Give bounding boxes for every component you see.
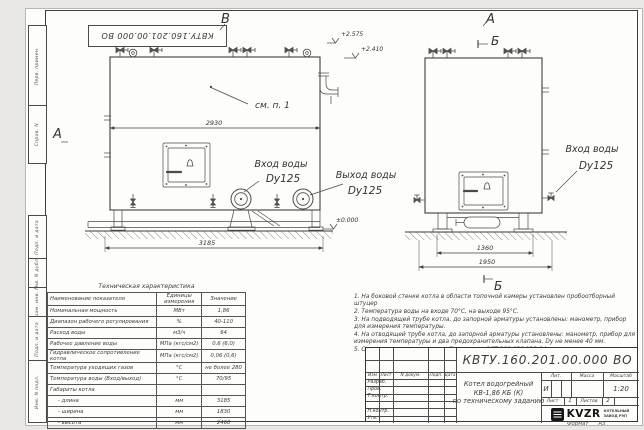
doc-number: КВТУ.160.201.00.000 ВО	[456, 348, 639, 372]
burner-icon	[456, 217, 500, 228]
tb-mass-label: Масса	[571, 372, 603, 380]
spec-row: Гидравлическое сопротивление котлаМПа (к…	[48, 350, 246, 363]
tb-row-tkontr: Т.контр.	[368, 394, 389, 399]
inlet-callout-front: Вход воды Dy125	[244, 159, 308, 192]
tb-col-podp: Подп.	[428, 372, 444, 379]
dim-2930-label: 2930	[206, 119, 223, 127]
dim-1360-label: 1360	[477, 244, 494, 252]
pipe-valve-left	[414, 195, 425, 202]
dim-1950-label: 1950	[479, 258, 496, 266]
elevation-marks: +2.575 +2.410 ±0.000	[323, 31, 383, 229]
furnace-door-front	[163, 143, 210, 187]
spec-row: Температура уходящих газов°Сне более 280	[48, 363, 246, 374]
technical-notes: 1. На боковой стенке котла в области топ…	[354, 294, 639, 354]
tb-lit-value: И	[541, 380, 551, 397]
front-view: 2930 3185 см. п. 1 В А Вход воды Dy125 В…	[52, 12, 397, 252]
outlet-callout-front: Выход воды Dy125	[310, 170, 397, 197]
outlet-title: Выход воды	[336, 170, 397, 181]
tb-row-utv: Утв.	[368, 416, 378, 421]
tb-sheet-value: 1	[564, 397, 576, 405]
see-note-label: см. п. 1	[255, 101, 290, 111]
spec-row: Расход водым3/ч64	[48, 328, 246, 339]
elev-2410-label: +2.410	[361, 46, 383, 53]
section-letter-B: Б	[494, 279, 502, 293]
tb-scale-value: 1:20	[603, 380, 639, 397]
note-line: 2. Температура воды на входе 70°С, на вы…	[354, 309, 639, 316]
tb-row-razrab: Разраб.	[368, 380, 387, 385]
tb-col-ndocum: N докум.	[393, 372, 428, 379]
spec-col-name: Наименование показателя	[48, 293, 157, 306]
drain-valve-icon	[274, 194, 279, 208]
lifting-lug-icon	[129, 49, 137, 57]
outlet-elbow-icon	[318, 73, 338, 104]
tb-col-list: Лист	[379, 372, 393, 379]
inlet-title: Вход воды	[254, 159, 308, 170]
tb-row-nkontr: Н.контр.	[368, 409, 389, 414]
view-arrow-A: А	[485, 12, 495, 27]
dim-3185-label: 3185	[199, 239, 216, 247]
outlet-size: Dy125	[348, 185, 383, 197]
side-flange-ticks	[542, 88, 549, 154]
tb-sheets-value: 2	[602, 397, 614, 405]
spec-col-value: Значение	[202, 293, 246, 306]
ground-hatch	[405, 232, 567, 240]
door-lock-icon	[484, 183, 490, 189]
section-mark-B-bottom: Б	[484, 275, 502, 293]
tb-sheet-label: Лист	[541, 397, 564, 405]
product-name: Котел водогрейный КВ-1,86 КБ (К) по техн…	[456, 372, 541, 414]
ground-hatch	[85, 231, 333, 239]
title-block: Изм Лист N докум. Подп. Дата Разраб. Про…	[365, 347, 638, 422]
valve-icon	[285, 47, 297, 57]
spec-row: Температура воды (Вход/выход)°С70/95	[48, 374, 246, 385]
note-line: 1. На боковой стенке котла в области топ…	[354, 294, 639, 308]
water-inlet-flange-icon	[231, 189, 251, 209]
inlet-title: Вход воды	[565, 144, 619, 155]
door-lock-icon	[187, 160, 193, 166]
tb-sheets-label: Листов	[576, 397, 602, 405]
furnace-door-side	[459, 172, 508, 210]
drain-valve-icon	[130, 194, 135, 208]
spec-row: Диапазон рабочего регулирования%40-110	[48, 317, 246, 328]
valve-icon	[116, 47, 128, 57]
valve-icon	[443, 48, 455, 58]
tb-col-izm: Изм	[366, 372, 379, 379]
inlet-size: Dy125	[579, 160, 614, 172]
elev-2575-label: +2.575	[341, 31, 363, 38]
section-letter-A-left: А	[52, 127, 62, 142]
section-letter-B: Б	[491, 34, 499, 48]
inlet-size: Dy125	[266, 173, 301, 185]
spec-row: Габариты котла	[48, 385, 246, 396]
valve-icon	[229, 47, 241, 57]
kvzr-logo-icon	[551, 408, 564, 421]
side-view: А Б	[405, 12, 619, 293]
spec-row: Номинальная мощностьМВт1,86	[48, 306, 246, 317]
tb-scale-label: Масштаб	[603, 372, 639, 380]
spec-header-row: Наименование показателя Единицы измерени…	[48, 293, 246, 306]
pipe-valve-right	[542, 193, 554, 200]
note-line: 3. На подводящей трубе котла, до запорно…	[354, 317, 639, 331]
valve-icon	[243, 47, 255, 57]
tb-col-data: Дата	[444, 372, 456, 379]
format-note: ФорматА3	[567, 421, 606, 427]
see-note-callout: см. п. 1	[210, 86, 290, 111]
tb-lit-label: Лит.	[541, 372, 571, 380]
spec-table: Техническая характеристика Наименование …	[47, 283, 246, 429]
water-outlet-flange-icon	[293, 189, 313, 209]
dimension-2930: 2930	[110, 119, 320, 128]
section-mark-B-top: Б	[478, 34, 499, 48]
drain-valve-icon	[210, 194, 215, 208]
spec-row: - ширинамм1830	[48, 407, 246, 418]
valve-icon	[429, 48, 441, 58]
boiler-body-side	[425, 58, 542, 213]
support-frame-front	[88, 210, 323, 230]
view-arrow-B: В	[221, 12, 230, 27]
spec-row: Рабочее давление водыМПа (кгс/см2)0,6 (6…	[48, 339, 246, 350]
boiler-body-front	[110, 57, 320, 210]
tb-row-prov: Пров.	[368, 387, 382, 392]
valve-icon	[150, 47, 162, 57]
elev-zero-label: ±0.000	[336, 217, 358, 224]
kvzr-logo-text: KVZR	[567, 408, 601, 420]
company-name: КОТЕЛЬНЫЙ ЗАВОД РЭП	[604, 409, 630, 418]
spec-row: - длинамм3185	[48, 396, 246, 407]
spec-col-units: Единицы измерения	[157, 293, 202, 306]
spec-table-title: Техническая характеристика	[47, 283, 246, 290]
lifting-lug-icon	[303, 49, 311, 57]
note-line: 4. На отводящей трубе котла, до запорной…	[354, 332, 639, 346]
inlet-callout-side: Вход воды Dy125	[556, 144, 619, 192]
valve-icon	[504, 48, 516, 58]
valve-icon	[518, 48, 530, 58]
spec-row: - высотамм2460	[48, 418, 246, 429]
